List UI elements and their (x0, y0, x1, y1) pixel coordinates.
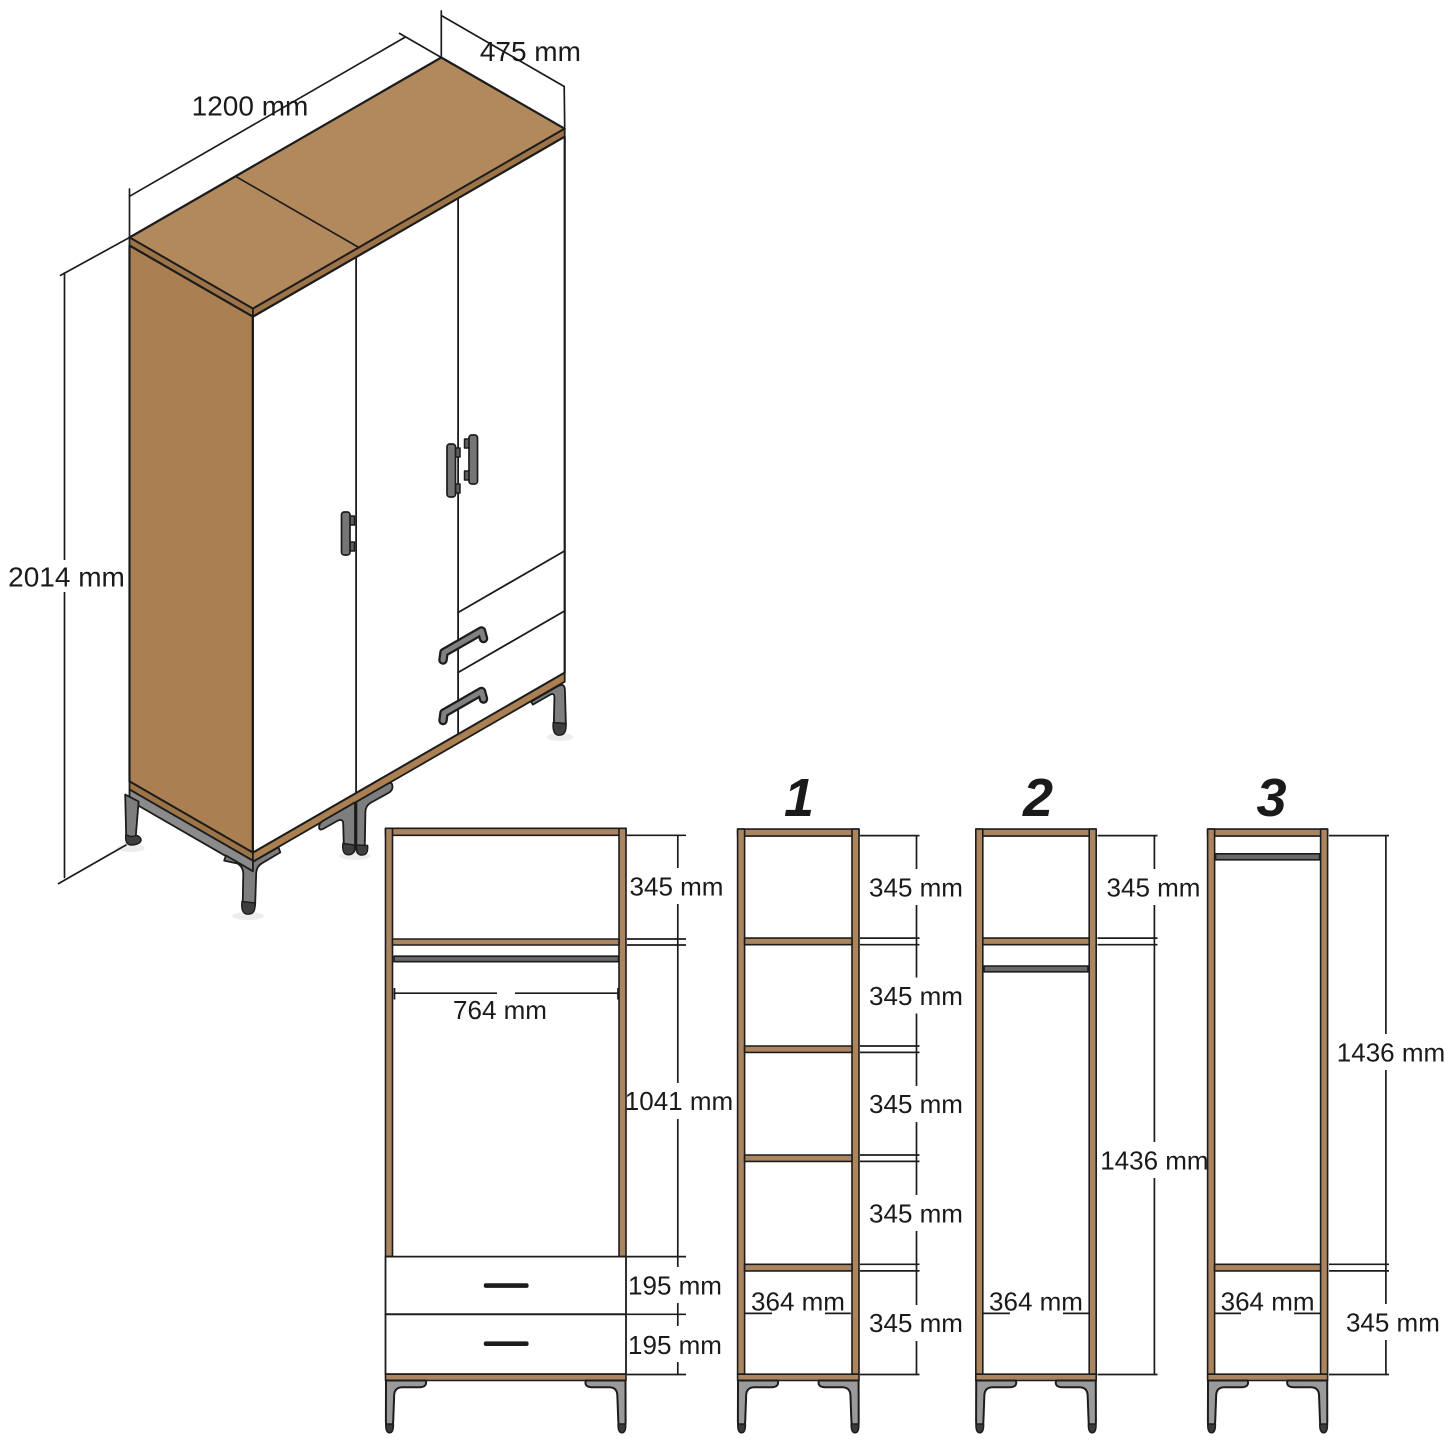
svg-text:1436 mm: 1436 mm (1100, 1146, 1208, 1176)
svg-text:345 mm: 345 mm (630, 872, 724, 902)
svg-text:1436 mm: 1436 mm (1337, 1038, 1445, 1068)
svg-text:345 mm: 345 mm (869, 1308, 963, 1338)
svg-text:364 mm: 364 mm (1221, 1287, 1315, 1317)
svg-text:1: 1 (784, 768, 814, 828)
svg-text:764 mm: 764 mm (453, 995, 547, 1025)
svg-text:364 mm: 364 mm (751, 1287, 845, 1317)
svg-text:345 mm: 345 mm (869, 1198, 963, 1228)
svg-text:345 mm: 345 mm (869, 981, 963, 1011)
svg-text:364 mm: 364 mm (989, 1287, 1083, 1317)
svg-text:345 mm: 345 mm (869, 872, 963, 902)
svg-text:1200 mm: 1200 mm (192, 91, 309, 122)
svg-text:195 mm: 195 mm (628, 1271, 722, 1301)
svg-text:3: 3 (1256, 768, 1286, 828)
svg-text:1041 mm: 1041 mm (625, 1086, 733, 1116)
svg-text:2: 2 (1022, 768, 1053, 828)
svg-text:345 mm: 345 mm (1107, 872, 1201, 902)
svg-text:345 mm: 345 mm (1346, 1307, 1440, 1337)
svg-text:2014 mm: 2014 mm (8, 562, 125, 593)
svg-text:345 mm: 345 mm (869, 1089, 963, 1119)
svg-text:475 mm: 475 mm (480, 36, 581, 67)
svg-text:195 mm: 195 mm (628, 1330, 722, 1360)
